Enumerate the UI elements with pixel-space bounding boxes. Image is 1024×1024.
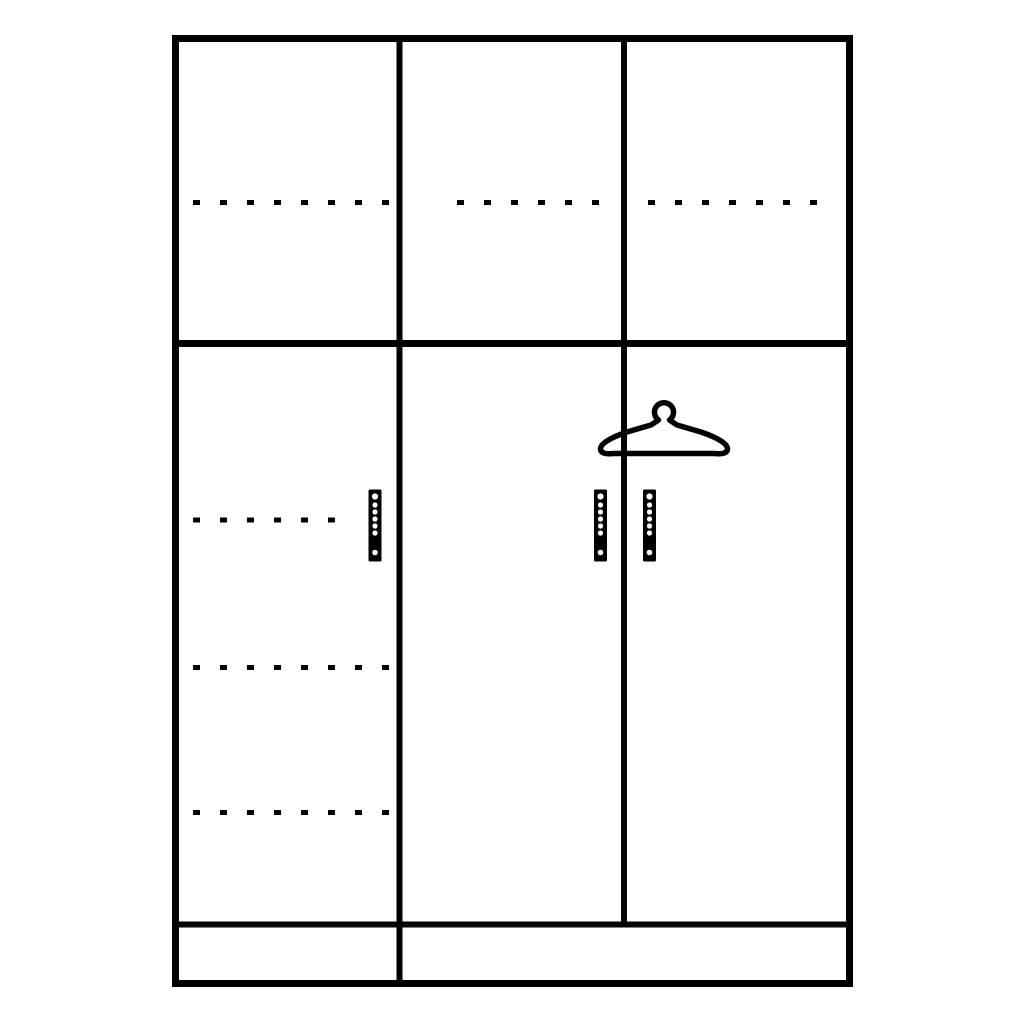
handle-dot (372, 493, 378, 499)
handle-dot (647, 550, 653, 556)
handle-dot (598, 502, 603, 507)
handle-dot (646, 493, 652, 499)
door-handle-middle (594, 490, 607, 562)
handle-dot (372, 550, 378, 556)
wardrobe-frame (176, 39, 850, 984)
hanger-outline (601, 403, 728, 454)
handle-dot (647, 516, 652, 521)
handle-dot (647, 509, 652, 514)
handle-dot (372, 516, 377, 521)
handle-dot (598, 509, 603, 514)
handle-dot (598, 530, 603, 535)
page-canvas (0, 0, 1024, 1024)
handle-dot (598, 516, 603, 521)
handle-dot (647, 530, 652, 535)
handle-dot (372, 509, 377, 514)
handle-dot (647, 502, 652, 507)
handle-dot (647, 523, 652, 528)
handle-dot (372, 530, 377, 535)
handle-dot (598, 523, 603, 528)
handle-dot (372, 523, 377, 528)
handle-dot (597, 493, 603, 499)
wardrobe-diagram (0, 0, 1024, 1024)
handle-dot (598, 550, 604, 556)
handle-dot (372, 502, 377, 507)
door-handle-left (369, 490, 382, 562)
clothes-hanger-icon (601, 403, 728, 454)
door-handle-right (643, 490, 656, 562)
